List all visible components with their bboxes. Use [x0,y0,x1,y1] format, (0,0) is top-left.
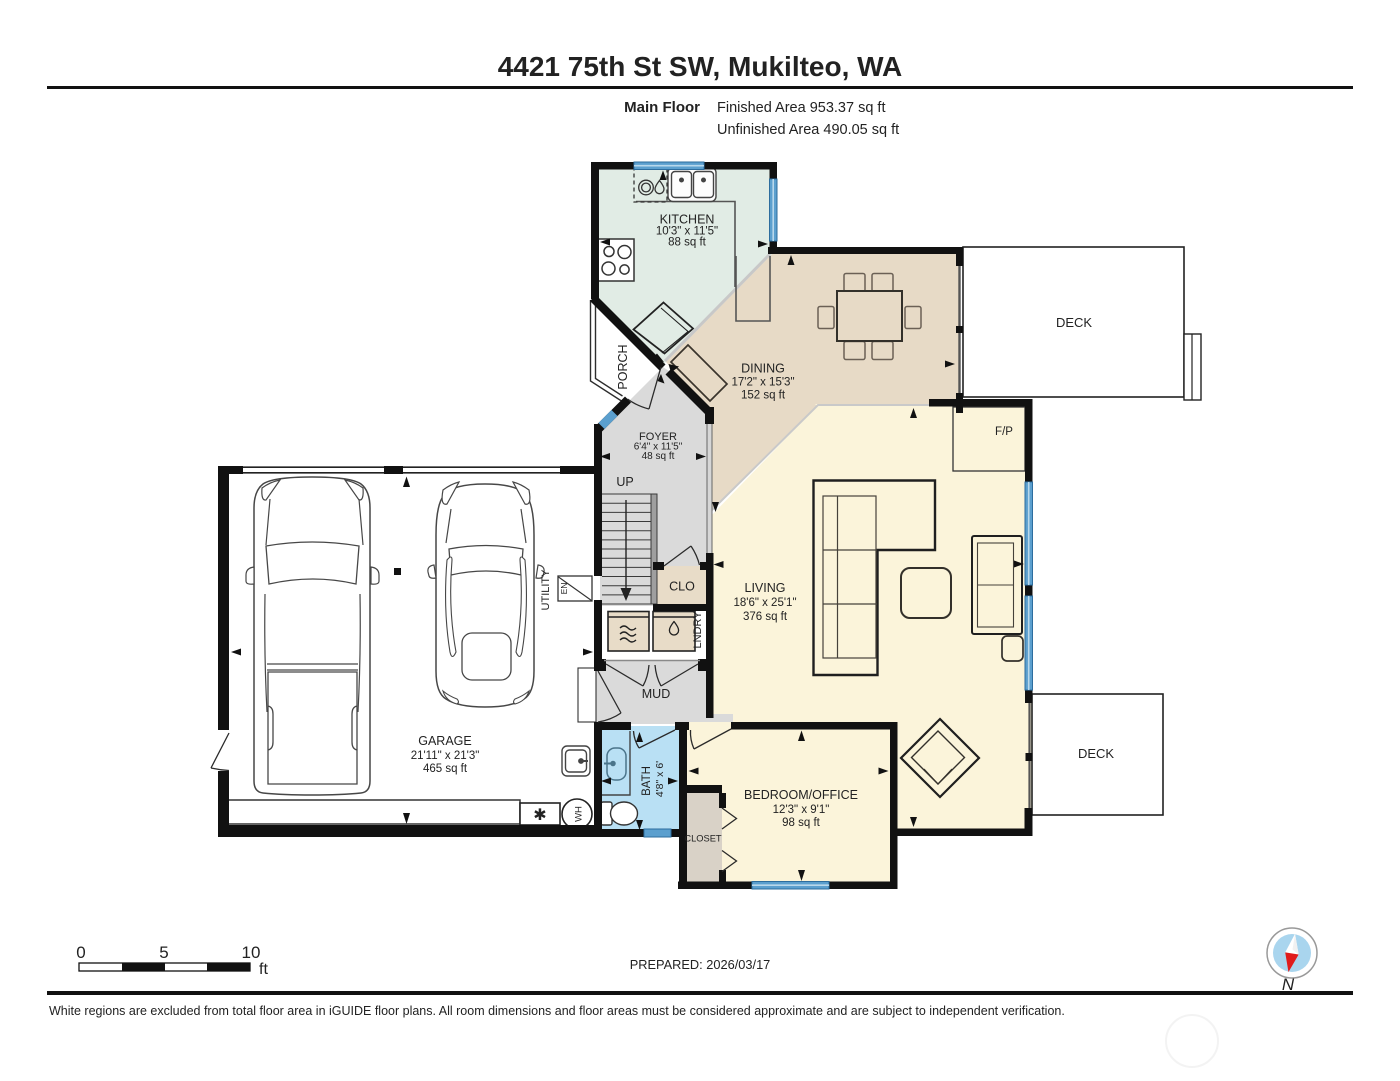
svg-text:✱: ✱ [533,807,546,824]
svg-text:18'6" x 25'1": 18'6" x 25'1" [733,597,796,609]
svg-text:465 sq ft: 465 sq ft [423,763,468,775]
svg-text:White regions are excluded fro: White regions are excluded from total fl… [49,1004,1065,1018]
svg-text:98 sq ft: 98 sq ft [782,817,821,829]
svg-text:GARAGE: GARAGE [418,734,472,748]
svg-text:10: 10 [242,943,261,962]
svg-text:Finished Area 953.37 sq ft: Finished Area 953.37 sq ft [717,100,885,116]
svg-text:4421 75th St SW, Mukilteo, WA: 4421 75th St SW, Mukilteo, WA [498,51,903,82]
svg-text:BEDROOM/OFFICE: BEDROOM/OFFICE [744,788,858,802]
svg-text:MUD: MUD [642,687,670,701]
svg-text:12'3" x 9'1": 12'3" x 9'1" [773,804,830,816]
svg-text:CLO: CLO [669,580,695,594]
svg-text:LIVING: LIVING [745,581,786,595]
svg-text:WH: WH [574,806,585,822]
svg-text:PORCH: PORCH [616,344,630,389]
svg-text:CLOSET: CLOSET [684,834,722,844]
svg-text:Main Floor: Main Floor [624,99,700,116]
svg-text:DECK: DECK [1056,315,1092,330]
svg-text:21'11" x 21'3": 21'11" x 21'3" [411,750,480,762]
svg-text:PREPARED: 2026/03/17: PREPARED: 2026/03/17 [630,957,771,972]
svg-text:0: 0 [76,943,85,962]
svg-text:DINING: DINING [741,362,785,376]
svg-text:152 sq ft: 152 sq ft [741,390,786,402]
svg-text:ft: ft [259,961,268,978]
svg-text:17'2" x 15'3": 17'2" x 15'3" [731,377,794,389]
svg-text:48 sq ft: 48 sq ft [642,451,675,462]
svg-text:376 sq ft: 376 sq ft [743,611,788,623]
svg-text:4'8" x 6': 4'8" x 6' [654,761,666,797]
svg-text:Unfinished Area 490.05 sq ft: Unfinished Area 490.05 sq ft [717,122,899,138]
svg-text:KITCHEN: KITCHEN [660,213,715,227]
svg-text:DECK: DECK [1078,746,1114,761]
svg-text:BATH: BATH [641,766,653,796]
svg-text:88 sq ft: 88 sq ft [668,237,707,249]
svg-text:LNDRY: LNDRY [692,611,704,649]
svg-text:UTILITY: UTILITY [540,569,552,611]
svg-text:F/P: F/P [995,426,1013,438]
svg-text:EN: EN [559,583,569,595]
svg-text:UP: UP [616,475,633,489]
svg-text:5: 5 [159,943,168,962]
